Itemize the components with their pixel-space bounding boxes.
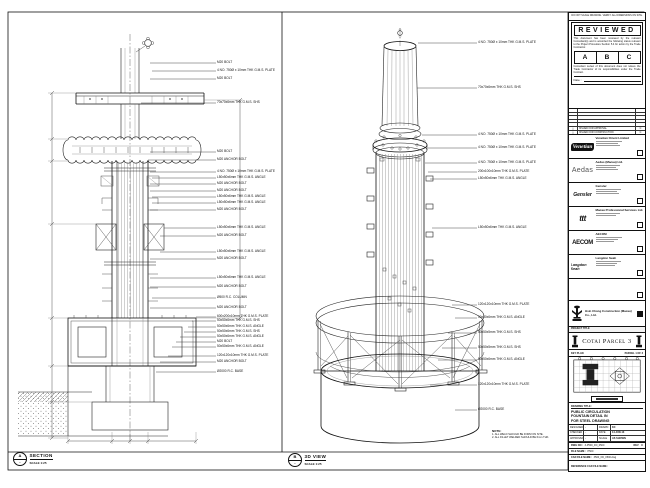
dwg-no-label: DWG NO : — [571, 444, 583, 447]
consultant-name: Venetian Orient Limited — [596, 137, 644, 140]
revision-mark: △ — [569, 131, 578, 134]
callout-label: 70x70x6mm THK G.M.S. SHS — [217, 101, 260, 105]
scale-value: AS SHOWN — [611, 436, 645, 442]
callout-label: M20 ANCHOR BOLT — [217, 189, 247, 193]
dwg-no-value: 3-P500_FD_0500 — [585, 444, 605, 447]
consultant-name: Macau Professional Services Ltd. — [596, 209, 644, 212]
aecom-logo: AECOM — [572, 240, 593, 246]
consultant-checkbox[interactable] — [637, 198, 643, 204]
iso-bubble-sheet: - — [289, 460, 301, 466]
callout-label: L50x50x6mm THK G.M.S. ANGLE — [217, 201, 266, 205]
project-title-band: Cotai Parcel 3 — [569, 333, 645, 350]
section-view-title: A - SECTION SCALE 1:25 — [13, 452, 53, 466]
callout-label: 4 NO. 750Ø x 10mm THK G.M.S. PLATE — [478, 161, 536, 165]
drawing-title-block: DRAWING TITLE: PUBLIC CIRCULATION FOUNTA… — [569, 403, 645, 425]
callout-label: 50x50x6mm THK G.M.S. SHS — [217, 330, 260, 334]
callout-label: M20 BOLT — [217, 340, 232, 344]
callout-label: 50x50x5mm THK G.M.S. SHS — [478, 331, 521, 335]
key-plan-caption — [591, 396, 623, 402]
callout-label: 50x50x6mm THK G.M.S. ANGLE — [217, 335, 264, 339]
iso-view-title: B - 3D VIEW SCALE 1:25 — [288, 453, 326, 467]
callout-label: M20 ANCHOR BOLT — [217, 158, 247, 162]
status-box-c[interactable]: C — [619, 52, 640, 63]
file-name-value: P500 — [588, 450, 594, 453]
sheet-borders — [8, 12, 644, 470]
stamp-footer: Consultant review of this document does … — [574, 65, 641, 74]
consultant-name: Langdon Seah — [596, 257, 644, 260]
langdon-seah-logo: Langdon Seah — [571, 263, 595, 271]
title-block: DO NOT SCALE DRAWING. VERIFY ALL DIMENSI… — [568, 12, 646, 472]
file-name-label: FILE NAME : — [571, 450, 586, 453]
revision-by: C — [635, 131, 645, 134]
callout-label: 50x50x6mm THK G.M.S. ANGLE — [478, 358, 525, 362]
revision-by: C — [635, 127, 645, 130]
callout-label: M20 BOLT — [217, 61, 232, 65]
callout-label: 4 NO. 750Ø x 10mm THK G.M.S. PLATE — [478, 41, 536, 45]
date-fill-line[interactable] — [584, 78, 641, 82]
callout-label: 50x50x6mm THK G.M.S. ANGLE — [478, 316, 525, 320]
callout-label: L50x50x6mm THK G.M.S. ANGLE — [217, 226, 266, 230]
callout-label: Ø500 R.C. COLUMN — [217, 296, 247, 300]
consultant-name: Aedas (Macau) Ltd. — [596, 161, 644, 164]
column-ornament-icon — [571, 335, 579, 348]
consultant-row-mps: ttt Macau Professional Services Ltd. — [569, 207, 645, 231]
callout-label: L50x50x6mm THK G.M.S. ANGLE — [478, 226, 527, 230]
scalloped-ring — [63, 137, 201, 163]
callout-label: M20 BOLT — [217, 150, 232, 154]
consultant-checkbox[interactable] — [637, 222, 643, 228]
key-plan-building-footprint — [583, 364, 599, 385]
section-leader-lines — [141, 63, 216, 372]
gensler-logo: Gensler — [573, 192, 592, 198]
callout-label: L50x50x6mm THK G.M.S. ANGLE — [478, 177, 527, 181]
note-item: 2. ALL FILLET WELDED SHOULD BE 6mm THK. — [492, 436, 566, 439]
iso-view-name: 3D VIEW — [305, 454, 327, 461]
contractor-name: Hsin Chong Construction (Macau) Co., Ltd… — [583, 310, 637, 317]
consultant-row-venetian: Venetian Venetian Orient Limited — [569, 135, 645, 159]
callout-label: Ø2000 R.C. BASE — [478, 408, 504, 412]
ref-file-label: REFERENCE CAD FILE NAME : — [571, 465, 608, 468]
status-box-b[interactable]: B — [597, 52, 619, 63]
consultant-checkbox[interactable] — [637, 246, 643, 252]
stamp-body: This document has been reviewed by the r… — [574, 37, 641, 49]
approved-value: - — [584, 436, 598, 442]
iso-view-scale: SCALE 1:25 — [305, 462, 327, 466]
consultant-checkbox[interactable] — [637, 150, 643, 156]
callout-label: 120x120x10mm THK G.M.S. PLATE — [478, 383, 529, 387]
cad-file-label: CAD FILE NAME : — [571, 456, 592, 459]
rev-label: REV — [634, 444, 639, 447]
callout-label: 200x100x10mm THK G.M.S. PLATE — [478, 170, 529, 174]
contractor-logo-icon — [571, 305, 583, 323]
info-table: DESIGNED - DRAWN KC CHECKED - DATE 14-JU… — [569, 425, 645, 443]
venetian-logo: Venetian — [571, 143, 595, 151]
callout-label: L50x50x6mm THK G.M.S. ANGLE — [217, 195, 266, 199]
key-plan-parcel: PARCEL 1 OF 3 — [625, 352, 643, 355]
ref-file-row: REFERENCE CAD FILE NAME : — [569, 461, 645, 471]
section-bubble: A - — [13, 452, 27, 466]
stamp-title: REVIEWED — [574, 25, 641, 36]
revision-table: △ ISSUED FOR APPROVAL C △ ISSUED FOR CON… — [569, 109, 645, 135]
date-label: Date : — [574, 78, 582, 82]
callout-label: 4 NO. 750Ø x 10mm THK G.M.S. PLATE — [478, 133, 536, 137]
key-plan — [569, 357, 645, 403]
aedas-logo: Aedas — [572, 167, 593, 174]
contractor-row: Hsin Chong Construction (Macau) Co., Ltd… — [569, 301, 645, 327]
callout-label: 4 NO. 750Ø x 10mm THK G.M.S. PLATE — [217, 69, 275, 73]
drawing-sheet-canvas: NOTE: 1. ALL WELD SHOULD BE FORM ON SITE… — [0, 0, 650, 488]
project-name: Cotai Parcel 3 — [579, 338, 635, 345]
callout-label: L50x50x6mm THK G.M.S. ANGLE — [217, 276, 266, 280]
callout-label: 4 NO. 750Ø x 10mm THK G.M.S. PLATE — [217, 170, 275, 174]
revision-mark: △ — [569, 127, 578, 130]
callout-label: M20 ANCHOR BOLT — [217, 182, 247, 186]
callout-label: 50x50x6mm THK G.M.S. ANGLE — [217, 345, 264, 349]
consultant-row-aecom: AECOM AECOM — [569, 231, 645, 255]
callout-label: 120x120x10mm THK G.M.S. PLATE — [217, 354, 268, 358]
consultant-checkbox[interactable] — [637, 270, 643, 276]
reviewed-stamp: REVIEWED This document has been reviewed… — [569, 21, 645, 109]
drawing-title-line: FOR STEEL DRAWING — [571, 419, 643, 423]
drawing-title-label: DRAWING TITLE: — [571, 405, 643, 409]
iso-view-drawing — [314, 28, 487, 443]
revision-row: △ ISSUED FOR CONSTRUCTION C — [569, 131, 645, 134]
callout-label: 70x70x6mm THK G.M.S. SHS — [478, 86, 521, 90]
status-boxes: A B C — [574, 51, 641, 64]
section-view-name: SECTION — [30, 453, 53, 460]
callout-label: 50x50x5mm THK G.M.S. SHS — [478, 346, 521, 350]
callout-label: 120x120x10mm THK G.M.S. PLATE — [478, 303, 529, 307]
sheet: NOTE: 1. ALL WELD SHOULD BE FORM ON SITE… — [0, 0, 650, 488]
revision-desc: ISSUED FOR APPROVAL — [578, 127, 635, 130]
consultant-row-empty — [569, 279, 645, 301]
consultant-name: Gensler — [596, 185, 644, 188]
callout-label: M20 ANCHOR BOLT — [217, 360, 247, 364]
dimension-lines — [48, 91, 243, 444]
consultant-row-gensler: Gensler Gensler — [569, 183, 645, 207]
consultant-name: AECOM — [596, 233, 644, 236]
detail-mark-icon — [136, 37, 154, 52]
revision-desc: ISSUED FOR CONSTRUCTION — [578, 131, 635, 134]
callout-label: L50x50x6mm THK G.M.S. ANGLE — [217, 250, 266, 254]
status-box-a[interactable]: A — [575, 52, 597, 63]
callout-label: 50x50x6mm THK G.M.S. SHS — [217, 319, 260, 323]
callout-label: M20 ANCHOR BOLT — [217, 285, 247, 289]
callout-label: M20 BOLT — [217, 77, 232, 81]
consultant-row-aedas: Aedas Aedas (Macau) Ltd. — [569, 159, 645, 183]
callout-label: M20 ANCHOR BOLT — [217, 306, 247, 310]
rev-value: C — [641, 444, 643, 447]
callout-label: Ø2000 R.C. BASE — [217, 370, 243, 374]
key-plan-map — [572, 357, 642, 394]
callout-label: 4 NO. 750Ø x 10mm THK G.M.S. PLATE — [478, 146, 536, 150]
notes-block: NOTE: 1. ALL WELD SHOULD BE FORM ON SITE… — [492, 429, 566, 439]
consultant-checkbox[interactable] — [637, 292, 643, 298]
column-ornament-icon — [635, 335, 643, 348]
callout-label: L50x50x6mm THK G.M.S. ANGLE — [217, 176, 266, 180]
callout-label: M20 ANCHOR BOLT — [217, 257, 247, 261]
section-view-scale: SCALE 1:25 — [30, 461, 53, 465]
key-plan-strip: KEY PLAN PARCEL 1 OF 3 — [569, 350, 645, 357]
scale-label: SCALE — [598, 436, 611, 442]
approved-label: APPROVED — [569, 436, 584, 442]
mps-logo: ttt — [579, 214, 586, 223]
stamp-date-row: Date : — [574, 76, 641, 82]
top-note: DO NOT SCALE DRAWING. VERIFY ALL DIMENSI… — [569, 13, 645, 21]
consultant-checkbox[interactable] — [637, 174, 643, 180]
callout-label: 50x50x6mm THK G.M.S. ANGLE — [217, 325, 264, 329]
key-plan-label: KEY PLAN — [571, 352, 584, 355]
callout-label: M20 ANCHOR BOLT — [217, 234, 247, 238]
iso-bubble: B - — [288, 453, 302, 467]
cad-file-value: 3500_FD_0500.dwg — [594, 456, 617, 459]
section-bubble-sheet: - — [14, 459, 26, 465]
section-view-drawing — [18, 34, 243, 444]
consultant-row-langdon: Langdon Seah Langdon Seah — [569, 255, 645, 279]
linework-svg — [0, 0, 650, 488]
contractor-checkbox[interactable] — [637, 311, 643, 317]
callout-label: M20 ANCHOR BOLT — [217, 208, 247, 212]
